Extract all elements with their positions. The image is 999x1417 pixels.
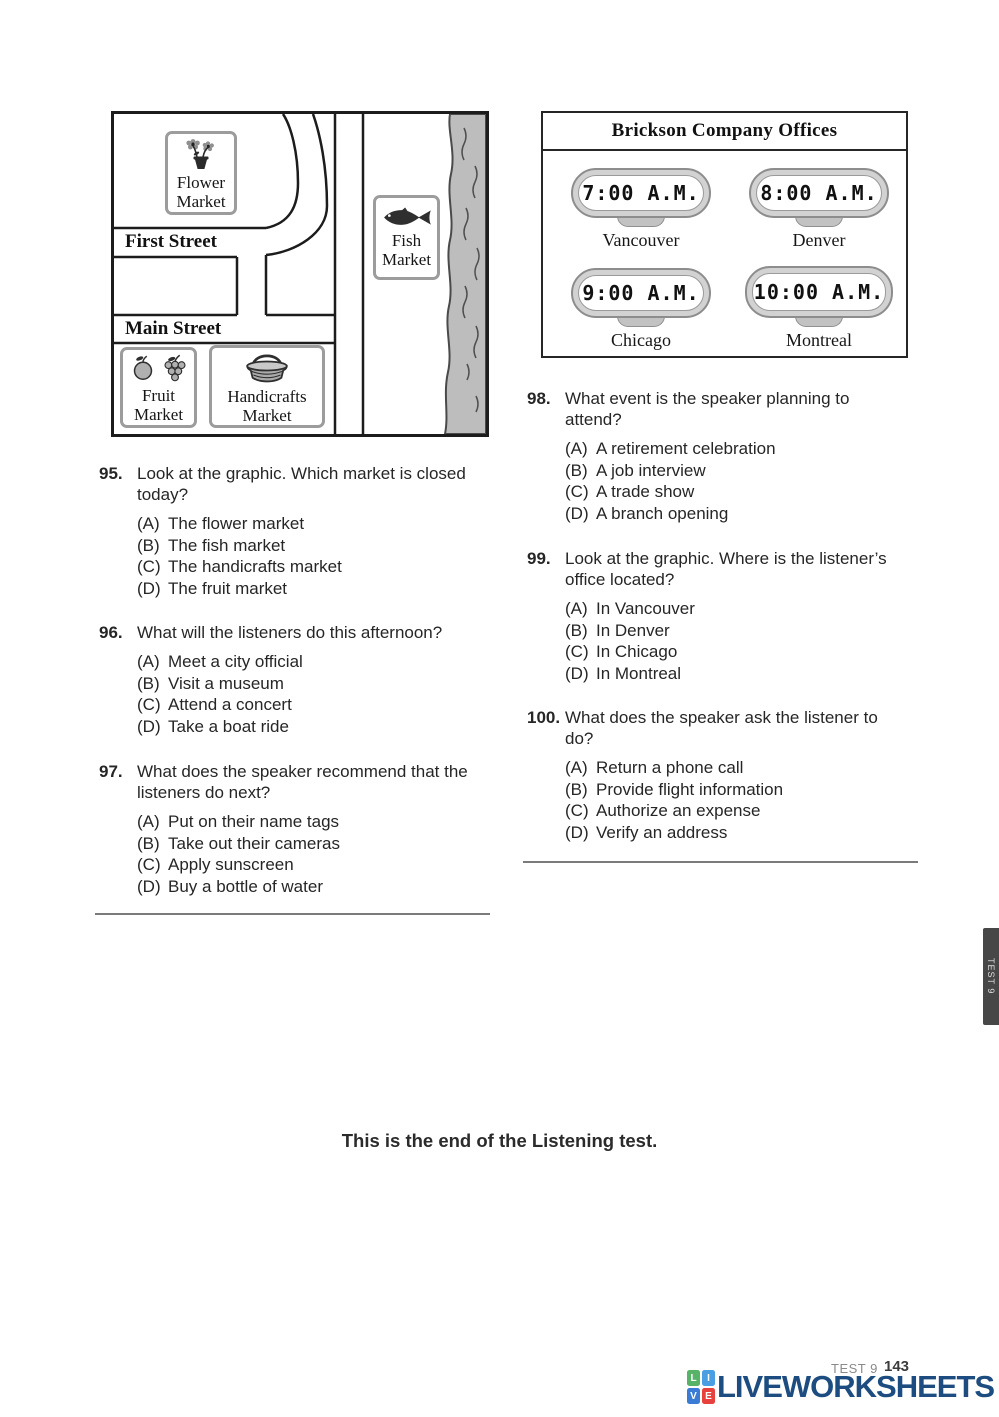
- clock-unit-vancouver: 7:00 A.M. Vancouver: [557, 168, 725, 251]
- question-text: What event is the speaker planning to at…: [565, 388, 903, 430]
- clock-city-label: Montreal: [732, 330, 906, 351]
- question-96: 96. What will the listeners do this afte…: [99, 622, 499, 737]
- section-divider-left: [95, 913, 490, 915]
- test-side-tab: TEST 9: [983, 928, 999, 1025]
- option-text: Meet a city official: [168, 651, 303, 673]
- option-text: In Vancouver: [596, 598, 695, 620]
- option-text: A job interview: [596, 460, 706, 482]
- option-b: (B)The fish market: [137, 535, 497, 557]
- option-text: In Denver: [596, 620, 670, 642]
- option-b: (B)Take out their cameras: [137, 833, 497, 855]
- option-c: (C)In Chicago: [565, 641, 903, 663]
- option-a: (A)The flower market: [137, 513, 497, 535]
- fish-icon: [380, 207, 434, 228]
- clock-time: 10:00 A.M.: [752, 273, 886, 311]
- option-text: The flower market: [168, 513, 304, 535]
- options-list: (A)The flower market (B)The fish market …: [137, 513, 497, 599]
- question-number: 95.: [99, 463, 137, 599]
- option-label: (A): [137, 513, 168, 535]
- option-a: (A)A retirement celebration: [565, 438, 903, 460]
- clock-unit-montreal: 10:00 A.M. Montreal: [732, 266, 906, 351]
- clock-city-label: Vancouver: [557, 230, 725, 251]
- question-text: Look at the graphic. Where is the listen…: [565, 548, 903, 590]
- question-number: 98.: [527, 388, 565, 524]
- option-b: (B)Visit a museum: [137, 673, 497, 695]
- option-label: (B): [137, 673, 168, 695]
- question-98: 98. What event is the speaker planning t…: [527, 388, 931, 524]
- logo-cell-l: L: [687, 1370, 700, 1386]
- option-text: A retirement celebration: [596, 438, 776, 460]
- option-d: (D)The fruit market: [137, 578, 497, 600]
- river: [445, 114, 486, 434]
- option-text: Visit a museum: [168, 673, 284, 695]
- liveworksheets-grid-icon: L I V E: [687, 1370, 715, 1404]
- clock-unit-denver: 8:00 A.M. Denver: [735, 168, 903, 251]
- option-a: (A)Meet a city official: [137, 651, 497, 673]
- digital-clock: 10:00 A.M.: [745, 266, 893, 318]
- question-number: 96.: [99, 622, 137, 737]
- option-label: (A): [137, 651, 168, 673]
- option-text: Attend a concert: [168, 694, 292, 716]
- option-text: In Montreal: [596, 663, 681, 685]
- options-list: (A)A retirement celebration (B)A job int…: [565, 438, 903, 524]
- option-label: (A): [565, 438, 596, 460]
- option-c: (C)Authorize an expense: [565, 800, 903, 822]
- option-a: (A)Put on their name tags: [137, 811, 497, 833]
- option-label: (D): [137, 716, 168, 738]
- offices-body: 7:00 A.M. Vancouver 8:00 A.M. Denver 9:0…: [543, 153, 906, 356]
- offices-title: Brickson Company Offices: [543, 113, 906, 151]
- liveworksheets-wordmark: LIVEWORKSHEETS: [717, 1369, 994, 1405]
- digital-clock: 7:00 A.M.: [571, 168, 711, 218]
- options-list: (A)In Vancouver (B)In Denver (C)In Chica…: [565, 598, 903, 684]
- option-d: (D)In Montreal: [565, 663, 903, 685]
- option-text: The fish market: [168, 535, 285, 557]
- logo-cell-v: V: [687, 1388, 700, 1404]
- question-text: What does the speaker ask the listener t…: [565, 707, 903, 749]
- option-label: (D): [565, 663, 596, 685]
- digital-clock: 9:00 A.M.: [571, 268, 711, 318]
- worksheet-page: Flower Market Fish Market: [0, 0, 999, 1417]
- end-of-test-text: This is the end of the Listening test.: [0, 1130, 999, 1152]
- option-label: (C): [565, 481, 596, 503]
- section-divider-right: [523, 861, 918, 863]
- option-d: (D)Take a boat ride: [137, 716, 497, 738]
- option-text: Authorize an expense: [596, 800, 760, 822]
- option-c: (C)The handicrafts market: [137, 556, 497, 578]
- question-number: 97.: [99, 761, 137, 897]
- option-text: Put on their name tags: [168, 811, 339, 833]
- option-label: (B): [565, 620, 596, 642]
- logo-cell-i: I: [702, 1370, 715, 1386]
- option-text: Buy a bottle of water: [168, 876, 323, 898]
- option-b: (B)A job interview: [565, 460, 903, 482]
- option-text: The handicrafts market: [168, 556, 342, 578]
- street-label-first: First Street: [125, 231, 217, 253]
- clock-time: 7:00 A.M.: [578, 175, 704, 211]
- question-text: What will the listeners do this afternoo…: [137, 622, 497, 643]
- sign-label-line: Handicrafts: [227, 387, 306, 406]
- option-b: (B)Provide flight information: [565, 779, 903, 801]
- option-label: (B): [137, 535, 168, 557]
- options-list: (A)Put on their name tags (B)Take out th…: [137, 811, 497, 897]
- sign-label-line: Market: [382, 250, 431, 269]
- question-number: 100.: [527, 707, 565, 843]
- apple-grapes-icon: [129, 351, 189, 383]
- option-label: (A): [565, 598, 596, 620]
- digital-clock: 8:00 A.M.: [749, 168, 889, 218]
- option-text: A trade show: [596, 481, 694, 503]
- brickson-offices-graphic: Brickson Company Offices 7:00 A.M. Vanco…: [541, 111, 908, 358]
- question-97: 97. What does the speaker recommend that…: [99, 761, 499, 897]
- option-label: (A): [137, 811, 168, 833]
- option-text: Return a phone call: [596, 757, 743, 779]
- question-100: 100. What does the speaker ask the liste…: [527, 707, 931, 843]
- side-tab-label: TEST 9: [986, 958, 996, 994]
- liveworksheets-logo: L I V E LIVEWORKSHEETS: [687, 1369, 994, 1405]
- option-d: (D)Buy a bottle of water: [137, 876, 497, 898]
- option-text: Provide flight information: [596, 779, 783, 801]
- option-label: (C): [565, 641, 596, 663]
- option-d: (D)A branch opening: [565, 503, 903, 525]
- option-label: (C): [137, 694, 168, 716]
- street-label-main: Main Street: [125, 318, 221, 340]
- option-text: A branch opening: [596, 503, 728, 525]
- city-map-graphic: Flower Market Fish Market: [111, 111, 489, 437]
- question-column-right: 98. What event is the speaker planning t…: [527, 388, 931, 867]
- option-d: (D)Verify an address: [565, 822, 903, 844]
- option-label: (C): [565, 800, 596, 822]
- option-text: Take a boat ride: [168, 716, 289, 738]
- clock-city-label: Chicago: [557, 330, 725, 351]
- option-label: (D): [137, 578, 168, 600]
- clock-city-label: Denver: [735, 230, 903, 251]
- basket-icon: [236, 348, 298, 384]
- question-number: 99.: [527, 548, 565, 684]
- sign-label-line: Fish: [392, 231, 421, 250]
- option-label: (A): [565, 757, 596, 779]
- option-c: (C)Attend a concert: [137, 694, 497, 716]
- option-text: Apply sunscreen: [168, 854, 294, 876]
- option-text: Take out their cameras: [168, 833, 340, 855]
- options-list: (A)Meet a city official (B)Visit a museu…: [137, 651, 497, 737]
- question-text: Look at the graphic. Which market is clo…: [137, 463, 497, 505]
- option-label: (D): [565, 503, 596, 525]
- sign-label-line: Market: [242, 406, 291, 425]
- option-label: (B): [137, 833, 168, 855]
- flower-pot-icon: [184, 136, 218, 170]
- sign-label-line: Fruit: [142, 386, 175, 405]
- question-99: 99. Look at the graphic. Where is the li…: [527, 548, 931, 684]
- option-a: (A)In Vancouver: [565, 598, 903, 620]
- option-text: Verify an address: [596, 822, 727, 844]
- option-c: (C)Apply sunscreen: [137, 854, 497, 876]
- option-text: The fruit market: [168, 578, 287, 600]
- flower-market-sign: Flower Market: [165, 131, 237, 215]
- option-label: (B): [565, 779, 596, 801]
- option-b: (B)In Denver: [565, 620, 903, 642]
- logo-cell-e: E: [702, 1388, 715, 1404]
- handicrafts-market-sign: Handicrafts Market: [209, 345, 325, 428]
- clock-time: 8:00 A.M.: [756, 175, 882, 211]
- sign-label-line: Market: [134, 405, 183, 424]
- clock-time: 9:00 A.M.: [578, 275, 704, 311]
- options-list: (A)Return a phone call (B)Provide flight…: [565, 757, 903, 843]
- question-95: 95. Look at the graphic. Which market is…: [99, 463, 499, 599]
- option-label: (D): [137, 876, 168, 898]
- fish-market-sign: Fish Market: [373, 195, 440, 280]
- option-text: In Chicago: [596, 641, 677, 663]
- option-label: (C): [137, 854, 168, 876]
- sign-label-line: Market: [176, 192, 225, 211]
- option-a: (A)Return a phone call: [565, 757, 903, 779]
- question-text: What does the speaker recommend that the…: [137, 761, 497, 803]
- option-label: (B): [565, 460, 596, 482]
- option-c: (C)A trade show: [565, 481, 903, 503]
- question-column-left: 95. Look at the graphic. Which market is…: [99, 463, 499, 920]
- sign-label-line: Flower: [177, 173, 225, 192]
- clock-unit-chicago: 9:00 A.M. Chicago: [557, 268, 725, 351]
- option-label: (D): [565, 822, 596, 844]
- fruit-market-sign: Fruit Market: [120, 347, 197, 428]
- option-label: (C): [137, 556, 168, 578]
